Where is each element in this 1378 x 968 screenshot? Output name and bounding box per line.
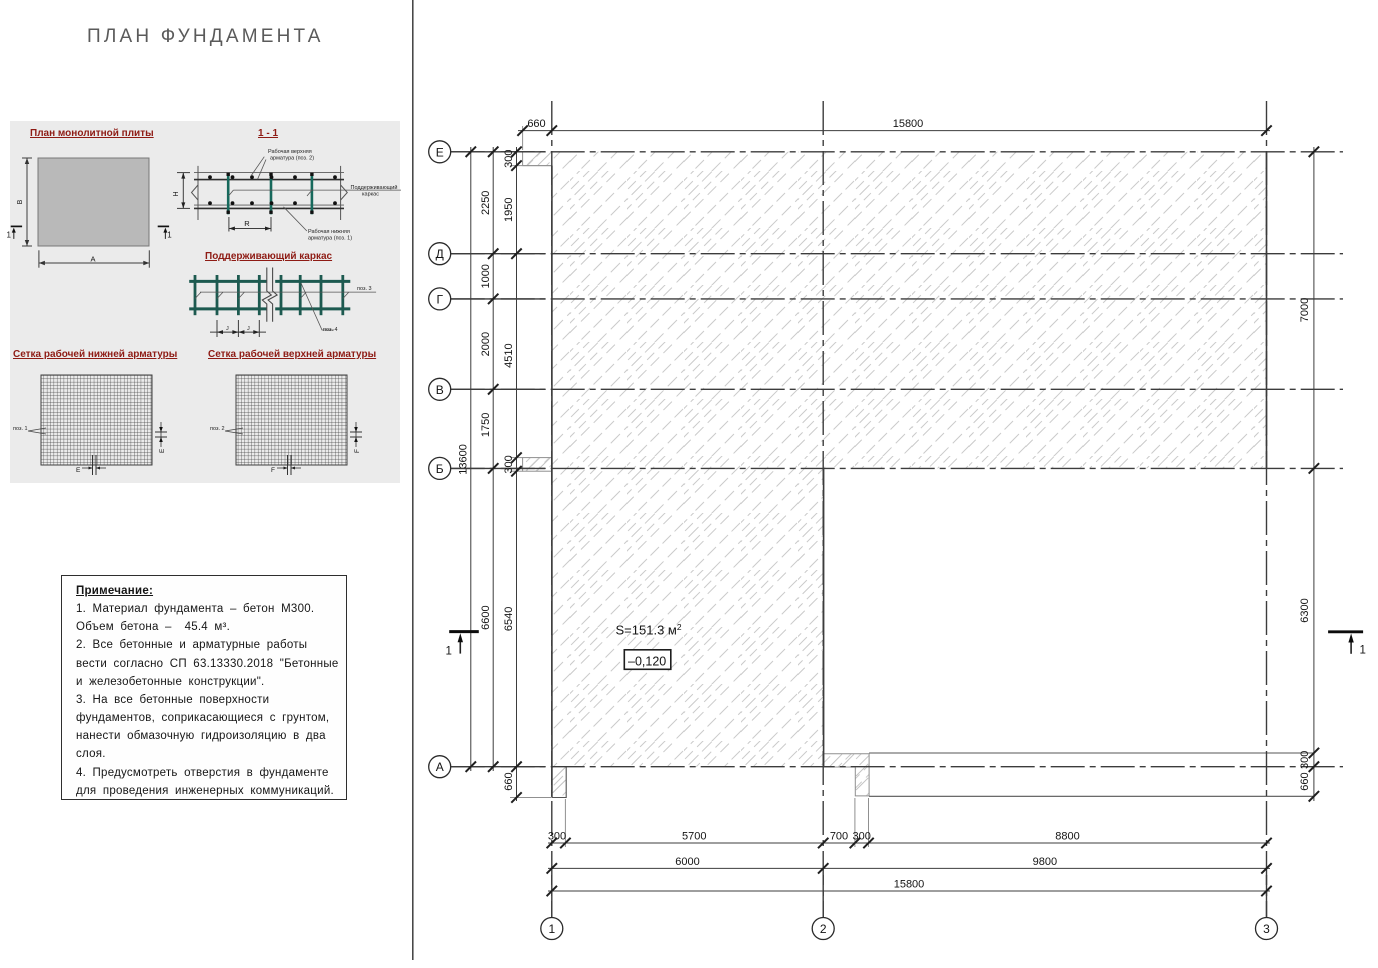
- svg-text:1000: 1000: [480, 264, 492, 288]
- svg-text:E: E: [159, 448, 166, 453]
- svg-text:поз. 3: поз. 3: [357, 286, 372, 292]
- svg-text:1: 1: [7, 231, 12, 240]
- svg-text:1 - 1: 1 - 1: [258, 128, 278, 139]
- svg-text:700: 700: [830, 831, 848, 843]
- svg-text:А: А: [436, 760, 444, 774]
- svg-text:F: F: [271, 467, 275, 474]
- svg-text:S=151.3 м2: S=151.3 м2: [616, 622, 682, 638]
- svg-text:15800: 15800: [893, 118, 924, 130]
- svg-text:1950: 1950: [503, 197, 515, 221]
- svg-text:H: H: [173, 191, 180, 196]
- svg-text:Сетка рабочей нижней арматуры: Сетка рабочей нижней арматуры: [13, 348, 177, 360]
- svg-text:1: 1: [446, 646, 452, 658]
- svg-text:В: В: [436, 383, 444, 397]
- svg-text:2: 2: [820, 922, 827, 936]
- svg-text:300: 300: [853, 831, 871, 843]
- svg-text:Сетка рабочей верхней арматуры: Сетка рабочей верхней арматуры: [208, 348, 376, 360]
- svg-text:1: 1: [548, 922, 555, 936]
- svg-text:Б: Б: [436, 462, 444, 476]
- svg-text:арматура (поз. 1): арматура (поз. 1): [308, 236, 352, 242]
- svg-text:B: B: [17, 199, 24, 204]
- svg-text:6000: 6000: [675, 856, 699, 868]
- svg-text:J: J: [226, 326, 229, 332]
- svg-text:6300: 6300: [1299, 598, 1311, 622]
- svg-text:E: E: [76, 467, 81, 474]
- svg-text:План монолитной плиты: План монолитной плиты: [30, 128, 154, 139]
- svg-text:поз. 2: поз. 2: [210, 426, 225, 432]
- svg-text:660: 660: [503, 772, 515, 790]
- svg-text:2000: 2000: [480, 332, 492, 356]
- svg-text:J: J: [247, 326, 250, 332]
- svg-text:4510: 4510: [503, 343, 515, 367]
- svg-text:13600: 13600: [458, 444, 470, 475]
- svg-text:6540: 6540: [503, 607, 515, 631]
- svg-text:A: A: [90, 255, 95, 264]
- svg-text:1: 1: [1360, 645, 1366, 657]
- svg-text:Е: Е: [436, 145, 444, 159]
- svg-text:300: 300: [503, 455, 515, 473]
- svg-text:660: 660: [1299, 772, 1311, 790]
- svg-text:арматура (поз. 2): арматура (поз. 2): [270, 156, 314, 162]
- svg-text:поз. 1: поз. 1: [13, 426, 28, 432]
- svg-text:Поддерживающий каркас: Поддерживающий каркас: [205, 251, 333, 262]
- svg-text:300: 300: [503, 150, 515, 168]
- svg-text:8800: 8800: [1055, 831, 1079, 843]
- svg-text:300: 300: [548, 831, 566, 843]
- svg-text:каркас: каркас: [362, 192, 379, 198]
- svg-text:1750: 1750: [480, 413, 492, 437]
- svg-text:300: 300: [1299, 751, 1311, 769]
- svg-text:660: 660: [527, 118, 545, 130]
- svg-text:Д: Д: [436, 247, 444, 261]
- svg-text:7000: 7000: [1299, 298, 1311, 322]
- svg-text:F: F: [354, 449, 361, 453]
- svg-text:6600: 6600: [480, 605, 492, 629]
- svg-text:Г: Г: [436, 292, 443, 306]
- svg-text:поз. 4: поз. 4: [323, 327, 338, 333]
- svg-text:3: 3: [1263, 922, 1270, 936]
- svg-text:5700: 5700: [682, 831, 706, 843]
- svg-text:Рабочая верхняя: Рабочая верхняя: [268, 149, 312, 155]
- svg-text:–0,120: –0,120: [628, 654, 666, 668]
- svg-text:Рабочая нижняя: Рабочая нижняя: [308, 229, 350, 235]
- svg-text:9800: 9800: [1033, 856, 1057, 868]
- svg-text:1: 1: [167, 231, 172, 240]
- svg-text:15800: 15800: [894, 879, 925, 891]
- svg-text:R: R: [244, 219, 250, 228]
- svg-text:2250: 2250: [480, 191, 492, 215]
